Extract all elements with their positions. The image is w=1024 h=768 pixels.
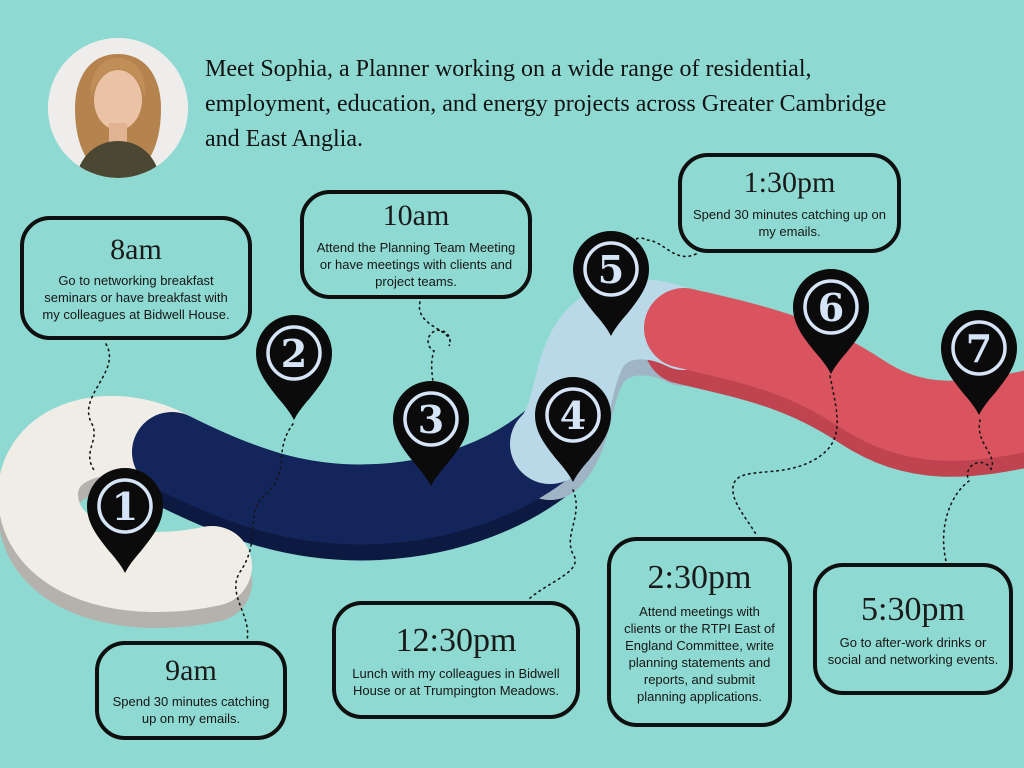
event-time: 1:30pm — [744, 166, 836, 201]
pin-number: 6 — [818, 285, 844, 330]
event-card-530pm: 5:30pm Go to after-work drinks or social… — [813, 563, 1013, 695]
event-card-230pm: 2:30pm Attend meetings with clients or t… — [607, 537, 792, 727]
location-pin-4: 4 — [533, 375, 613, 485]
intro-line-3: and East Anglia. — [205, 122, 1010, 157]
pin-number: 3 — [418, 397, 444, 442]
location-pin-6: 6 — [791, 267, 871, 377]
event-description: Spend 30 minutes catching up on my email… — [109, 693, 273, 727]
event-description: Lunch with my colleagues in Bidwell Hous… — [346, 665, 566, 699]
avatar — [48, 38, 188, 178]
event-card-10am: 10am Attend the Planning Team Meeting or… — [300, 190, 532, 299]
event-card-1230pm: 12:30pm Lunch with my colleagues in Bidw… — [332, 601, 580, 719]
connector-pin2-9am — [236, 424, 293, 640]
event-description: Attend the Planning Team Meeting or have… — [314, 239, 518, 290]
event-card-8am: 8am Go to networking breakfast seminars … — [20, 216, 252, 340]
intro-line-2: employment, education, and energy projec… — [205, 87, 1010, 122]
event-time: 12:30pm — [396, 621, 517, 660]
event-card-130pm: 1:30pm Spend 30 minutes catching up on m… — [678, 153, 901, 253]
event-time: 5:30pm — [861, 590, 965, 629]
event-description: Attend meetings with clients or the RTPI… — [621, 603, 778, 706]
pin-number: 5 — [598, 247, 624, 292]
event-time: 9am — [165, 654, 217, 689]
pin-number: 2 — [281, 331, 307, 376]
location-pin-5: 5 — [571, 229, 651, 339]
location-pin-1: 1 — [85, 466, 165, 576]
connector-pin4-1230 — [529, 490, 576, 599]
location-pin-2: 2 — [254, 313, 334, 423]
intro-text: Meet Sophia, a Planner working on a wide… — [205, 52, 1010, 157]
avatar-illustration — [48, 38, 188, 178]
event-description: Go to after-work drinks or social and ne… — [827, 634, 999, 668]
connector-pin7-530 — [944, 420, 993, 561]
infographic-canvas: Meet Sophia, a Planner working on a wide… — [0, 0, 1024, 768]
location-pin-7: 7 — [939, 308, 1019, 418]
connector-8am-pin1 — [89, 344, 110, 470]
pin-number: 7 — [966, 326, 992, 371]
event-time: 10am — [383, 199, 450, 234]
event-description: Spend 30 minutes catching up on my email… — [692, 206, 887, 240]
pin-number: 1 — [112, 484, 138, 529]
pin-number: 4 — [560, 393, 586, 438]
intro-line-1: Meet Sophia, a Planner working on a wide… — [205, 52, 1010, 87]
event-time: 8am — [110, 233, 162, 268]
event-description: Go to networking breakfast seminars or h… — [34, 272, 238, 323]
location-pin-3: 3 — [391, 379, 471, 489]
event-time: 2:30pm — [648, 558, 752, 597]
connector-pin6-230 — [733, 376, 837, 536]
event-card-9am: 9am Spend 30 minutes catching up on my e… — [95, 641, 287, 740]
